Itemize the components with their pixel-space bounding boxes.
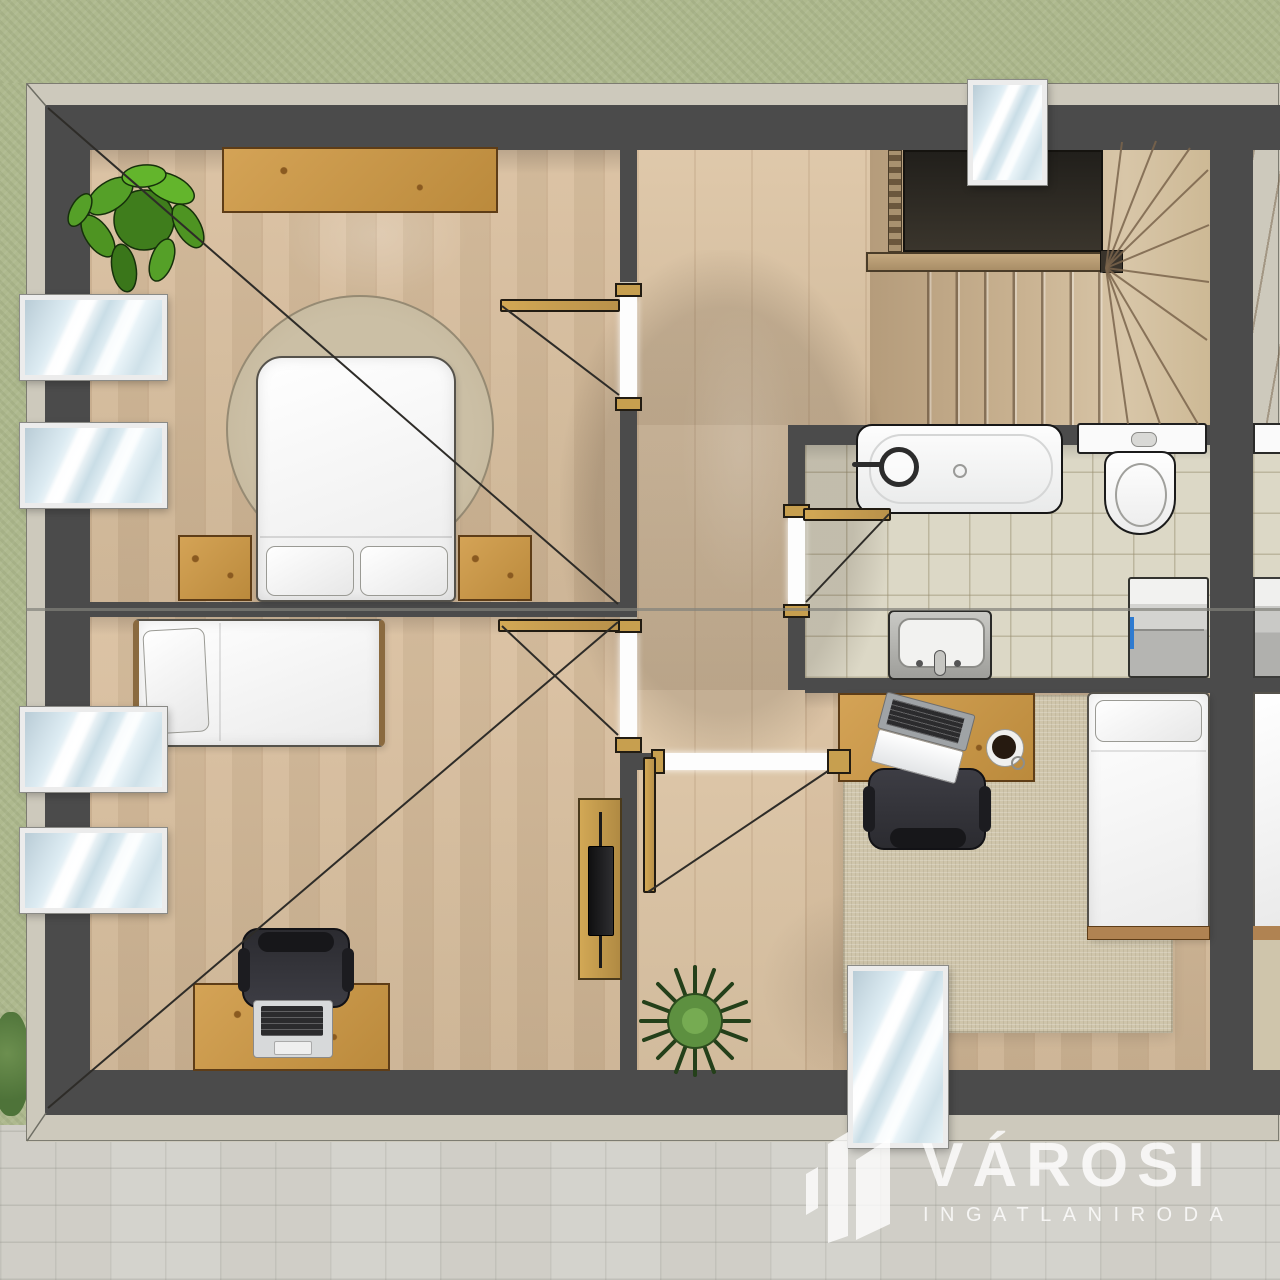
roof-ridge-line (26, 608, 1280, 611)
plan-linework (0, 0, 1280, 1280)
roof-window (20, 423, 167, 508)
watermark-tagline: INGATLANIRODA (923, 1204, 1234, 1227)
floor-plan-render: VÁROSI INGATLANIRODA (0, 0, 1280, 1280)
roof-window (20, 295, 167, 380)
watermark: VÁROSI INGATLANIRODA (790, 1108, 1260, 1258)
roof-window (20, 828, 167, 913)
window-glass (25, 712, 162, 787)
window-glass (25, 428, 162, 503)
window-glass (973, 85, 1042, 180)
window-glass (25, 833, 162, 908)
window-glass (25, 300, 162, 375)
watermark-brand: VÁROSI (922, 1130, 1214, 1201)
roof-window (20, 707, 167, 792)
brand-logo-icon (802, 1112, 906, 1252)
roof-window (968, 80, 1047, 185)
